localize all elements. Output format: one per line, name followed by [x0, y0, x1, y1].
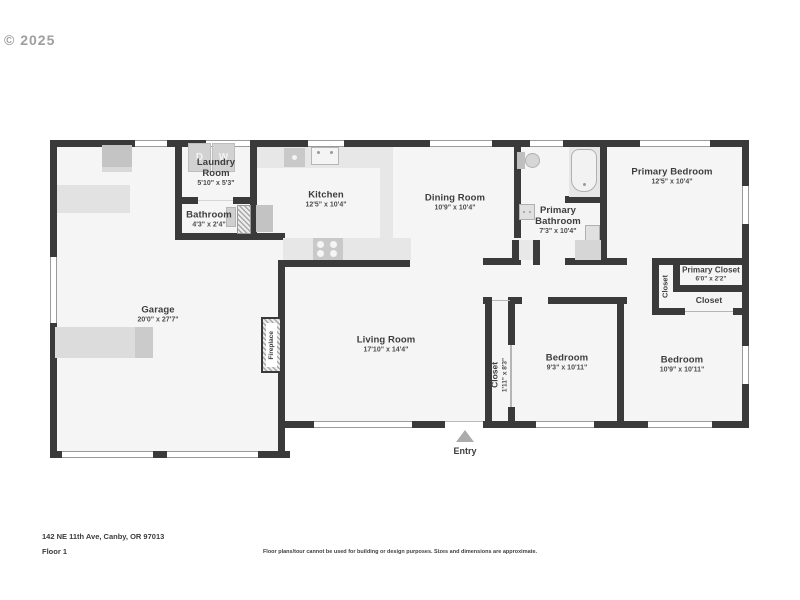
entry-arrow-icon	[456, 430, 474, 442]
garage-appliance	[102, 145, 132, 167]
garage-workbench	[135, 327, 153, 358]
garage-door	[62, 451, 153, 458]
wall	[258, 451, 290, 458]
window	[648, 421, 712, 428]
room-label-primary-bathroom: Primary Bathroom 7'3" x 10'4"	[530, 205, 586, 235]
wall	[548, 297, 627, 304]
disclaimer-text: Floor plans/tour cannot be used for buil…	[263, 549, 537, 555]
window	[530, 140, 563, 147]
window	[742, 346, 749, 384]
garage-shelf	[57, 185, 130, 213]
room-label-bathroom: Bathroom 4'3" x 2'4"	[186, 209, 232, 228]
wall	[742, 140, 749, 428]
kitchen-sink-icon	[311, 147, 339, 165]
wall	[600, 147, 607, 265]
shower-area	[575, 240, 601, 260]
room-dims: 20'0" x 27'7"	[137, 317, 178, 324]
room-label-kitchen: Kitchen 12'5" x 10'4"	[305, 189, 346, 208]
wall	[153, 451, 167, 458]
room-dims: 12'5" x 10'4"	[305, 202, 346, 209]
room-name: Primary Bathroom	[530, 205, 586, 227]
room-dims: 12'5" x 10'4"	[631, 179, 712, 186]
room-dims: 9'3" x 10'11"	[546, 365, 588, 372]
room-label-bedroom1: Bedroom 9'3" x 10'11"	[546, 352, 588, 371]
floor-plan: © 2025	[0, 0, 800, 600]
kitchen-counter	[283, 238, 411, 260]
closet-door	[685, 311, 733, 312]
room-name: Closet	[490, 362, 500, 388]
room-dims: 5'10" x 5'3"	[192, 180, 240, 187]
door-opening	[198, 200, 233, 201]
room-label-garage: Garage 20'0" x 27'7"	[137, 304, 178, 323]
wall	[508, 407, 515, 421]
window	[135, 140, 167, 147]
fireplace-label: Fireplace	[268, 331, 275, 360]
floor-number-text: Floor 1	[42, 547, 67, 556]
toilet-icon	[525, 153, 540, 168]
room-name: Primary Closet	[682, 265, 740, 274]
room-label-dining: Dining Room 10'9" x 10'4"	[425, 192, 485, 211]
window	[536, 421, 594, 428]
room-dims: 6'0" x 2'2"	[682, 276, 740, 283]
room-label-hall-closet: Closet 1'11" x 8'3"	[490, 358, 509, 392]
window	[314, 421, 412, 428]
room-label-closet-vertical: Closet	[661, 275, 670, 303]
window	[430, 140, 492, 147]
room-dims: 1'11" x 8'3"	[502, 358, 509, 392]
wall	[652, 258, 749, 265]
wall	[50, 451, 62, 458]
room-name: Dining Room	[425, 192, 485, 203]
dishwasher-icon	[284, 148, 305, 167]
entry-opening	[445, 421, 483, 428]
wall	[512, 240, 519, 265]
room-name: Kitchen	[305, 189, 346, 200]
copyright-watermark: © 2025	[4, 32, 55, 48]
room-dims: 17'10" x 14'4"	[357, 347, 416, 354]
room-label-primary-bedroom: Primary Bedroom 12'5" x 10'4"	[631, 166, 712, 185]
wall	[533, 240, 540, 265]
wall	[673, 285, 749, 292]
room-name: Living Room	[357, 334, 416, 345]
room-name: Laundry Room	[192, 157, 240, 179]
wall	[233, 197, 250, 204]
wall	[175, 147, 182, 240]
room-label-bedroom2: Bedroom 10'9" x 10'11"	[660, 354, 705, 373]
utility-hatch	[237, 205, 251, 234]
room-label-living: Living Room 17'10" x 14'4"	[357, 334, 416, 353]
entry-label: Entry	[453, 446, 476, 456]
wall	[733, 308, 749, 315]
room-name: Bedroom	[546, 352, 588, 363]
bathtub-icon	[569, 147, 600, 197]
wall	[278, 260, 410, 267]
garage-door	[167, 451, 258, 458]
room-dims: 10'9" x 10'11"	[660, 367, 705, 374]
wall	[182, 197, 198, 204]
stove-icon	[313, 238, 343, 260]
room-dims: 10'9" x 10'4"	[425, 205, 485, 212]
window	[742, 186, 749, 224]
closet-door	[510, 345, 512, 407]
vanity-sink-icon	[585, 225, 600, 241]
linen-nook	[519, 240, 533, 260]
closet-door	[492, 300, 510, 301]
room-label-laundry: Laundry Room 5'10" x 5'3"	[192, 157, 240, 187]
wall	[652, 258, 659, 315]
room-name: Primary Bedroom	[631, 166, 712, 177]
room-name: Bedroom	[660, 354, 705, 365]
room-dims: 4'3" x 2'4"	[186, 222, 232, 229]
wall	[617, 297, 624, 421]
room-name: Bathroom	[186, 209, 232, 220]
room-label-closet: Closet	[696, 295, 723, 305]
window	[640, 140, 710, 147]
wall	[278, 421, 285, 458]
window	[308, 140, 344, 147]
water-heater-icon	[256, 205, 273, 232]
wall	[508, 297, 515, 345]
wall	[175, 233, 285, 240]
room-name: Closet	[661, 275, 670, 298]
room-dims: 7'3" x 10'4"	[530, 228, 586, 235]
toilet-icon	[517, 152, 525, 169]
room-name: Closet	[696, 295, 723, 305]
address-text: 142 NE 11th Ave, Canby, OR 97013	[42, 532, 164, 541]
room-name: Garage	[137, 304, 178, 315]
window	[50, 257, 57, 323]
wall	[652, 308, 685, 315]
wall	[565, 196, 607, 203]
fireplace: Fireplace	[261, 317, 282, 373]
garage-appliance	[102, 167, 132, 172]
room-label-primary-closet: Primary Closet 6'0" x 2'2"	[682, 265, 740, 282]
